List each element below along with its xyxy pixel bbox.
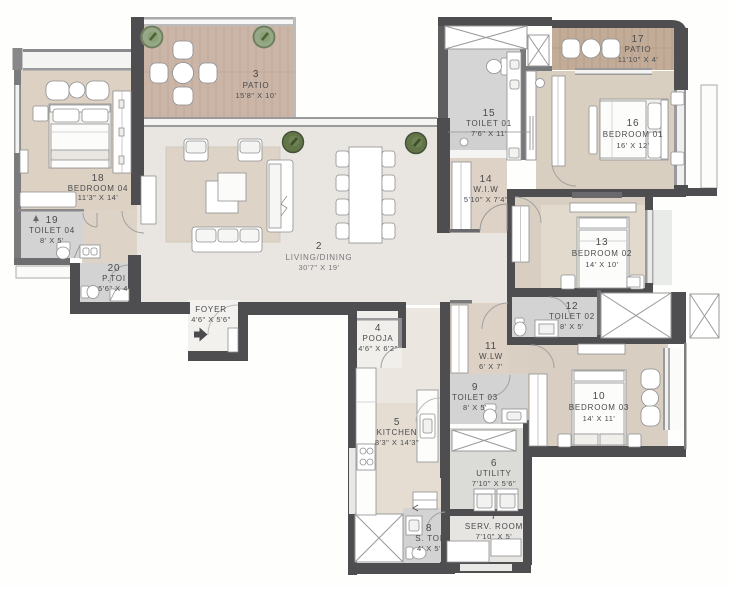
svg-text:19: 19	[46, 215, 59, 226]
svg-text:S. TOI: S. TOI	[415, 534, 443, 543]
svg-text:UTILITY: UTILITY	[476, 469, 511, 478]
svg-text:20: 20	[108, 263, 121, 274]
svg-text:7'6" X 11': 7'6" X 11'	[471, 129, 507, 138]
svg-text:POOJA: POOJA	[362, 334, 393, 343]
svg-text:BEDROOM 04: BEDROOM 04	[68, 184, 128, 193]
svg-text:2: 2	[316, 241, 322, 252]
svg-text:SERV. ROOM: SERV. ROOM	[465, 522, 523, 531]
svg-text:LIVING/DINING: LIVING/DINING	[286, 253, 353, 262]
svg-text:11: 11	[485, 341, 497, 352]
svg-text:8: 8	[426, 523, 432, 534]
svg-text:6: 6	[491, 458, 497, 469]
svg-text:15: 15	[483, 108, 496, 119]
svg-text:11'3" X 14': 11'3" X 14'	[78, 193, 119, 202]
svg-text:TOILET 01: TOILET 01	[466, 119, 512, 128]
svg-text:8' X 5': 8' X 5'	[463, 403, 487, 412]
svg-text:4' X 5': 4' X 5'	[417, 544, 441, 553]
svg-text:FOYER: FOYER	[195, 305, 227, 314]
svg-text:14' X 10': 14' X 10'	[585, 260, 618, 269]
svg-text:TOILET 02: TOILET 02	[549, 312, 595, 321]
svg-text:BEDROOM 02: BEDROOM 02	[572, 249, 632, 258]
svg-text:5: 5	[394, 417, 400, 428]
svg-text:PATIO: PATIO	[243, 81, 270, 90]
svg-text:8'3" X 14'3": 8'3" X 14'3"	[375, 438, 419, 447]
svg-text:15'8" X 10': 15'8" X 10'	[235, 91, 276, 100]
svg-text:W.LW: W.LW	[479, 352, 503, 361]
svg-text:TOILET 04: TOILET 04	[29, 226, 75, 235]
svg-text:14' X 11': 14' X 11'	[583, 414, 616, 423]
svg-text:5'10" X 7'4": 5'10" X 7'4"	[464, 195, 508, 204]
svg-text:30'7" X 19': 30'7" X 19'	[298, 263, 339, 272]
svg-text:17: 17	[632, 34, 645, 45]
svg-text:4: 4	[375, 323, 381, 334]
svg-text:7'10" X 5'6": 7'10" X 5'6"	[472, 479, 516, 488]
svg-text:8' X 5': 8' X 5'	[560, 322, 584, 331]
svg-text:8' X 5': 8' X 5'	[40, 236, 64, 245]
svg-text:PATIO: PATIO	[625, 45, 652, 54]
svg-text:4'6" X 6'2": 4'6" X 6'2"	[358, 344, 398, 353]
svg-text:BEDROOM 01: BEDROOM 01	[603, 130, 663, 139]
svg-text:14: 14	[480, 174, 493, 185]
svg-text:P.TOI: P.TOI	[102, 274, 126, 283]
svg-text:7'10" X 5': 7'10" X 5'	[476, 532, 512, 541]
svg-text:7: 7	[491, 511, 497, 522]
svg-text:13: 13	[596, 237, 609, 248]
svg-text:11'10" X 4': 11'10" X 4'	[618, 55, 659, 64]
svg-text:16: 16	[627, 118, 640, 129]
svg-text:TOILET 03: TOILET 03	[452, 393, 498, 402]
svg-text:10: 10	[593, 391, 606, 402]
svg-text:5'6" X 4': 5'6" X 4'	[98, 284, 130, 293]
svg-text:18: 18	[92, 173, 105, 184]
svg-text:W.I.W: W.I.W	[473, 185, 498, 194]
svg-text:4'6" X 5'6": 4'6" X 5'6"	[191, 315, 231, 324]
svg-text:12: 12	[566, 301, 579, 312]
svg-text:KITCHEN: KITCHEN	[377, 428, 418, 437]
svg-text:6' X 7': 6' X 7'	[479, 362, 503, 371]
svg-text:16' X 12': 16' X 12'	[616, 141, 649, 150]
svg-text:9: 9	[472, 382, 478, 393]
svg-text:3: 3	[253, 69, 259, 80]
svg-text:BEDROOM 03: BEDROOM 03	[569, 403, 629, 412]
